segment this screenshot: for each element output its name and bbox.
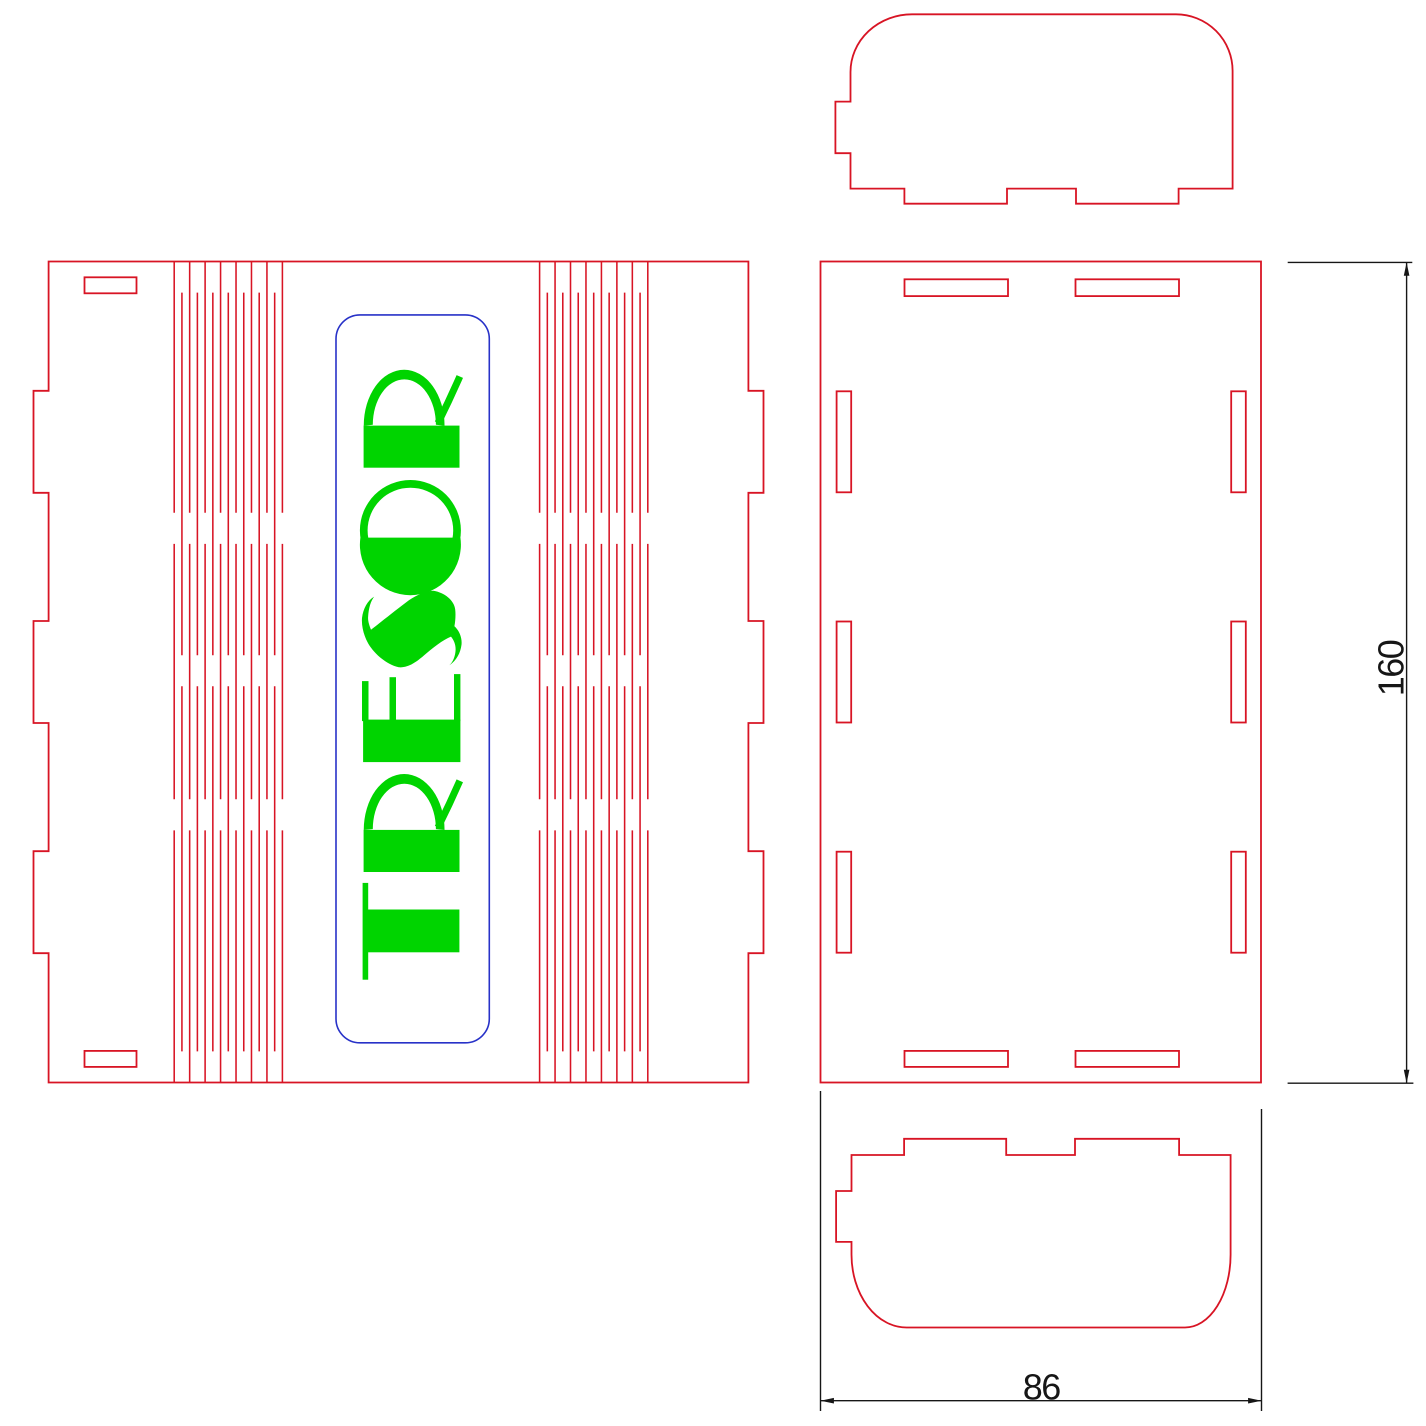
svg-text:160: 160 [1371,640,1412,696]
svg-text:86: 86 [1023,1367,1061,1408]
